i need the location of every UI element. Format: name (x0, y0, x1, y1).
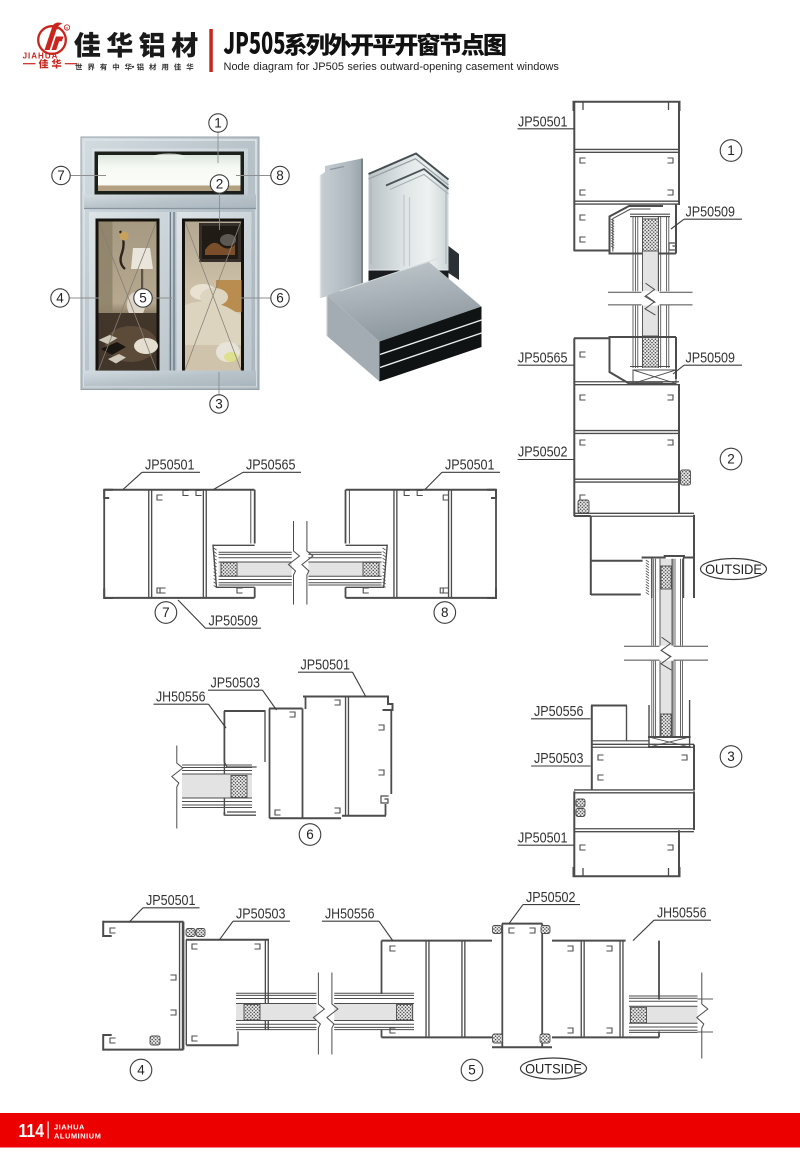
svg-text:7: 7 (162, 605, 170, 620)
svg-text:5: 5 (139, 291, 147, 306)
svg-text:3: 3 (727, 749, 735, 764)
svg-text:JH50556: JH50556 (325, 906, 375, 923)
svg-text:4: 4 (137, 1063, 145, 1078)
svg-text:OUTSIDE: OUTSIDE (525, 1061, 582, 1076)
svg-text:JP50556: JP50556 (534, 703, 584, 720)
svg-text:JH50556: JH50556 (156, 689, 206, 706)
svg-text:JP50503: JP50503 (534, 750, 584, 767)
svg-text:JP50501: JP50501 (518, 830, 568, 847)
svg-text:JP50509: JP50509 (209, 613, 259, 630)
svg-text:JH50556: JH50556 (657, 905, 707, 922)
svg-text:JP50502: JP50502 (518, 444, 568, 461)
svg-text:JP50501: JP50501 (518, 113, 568, 130)
svg-text:JP50501: JP50501 (145, 457, 195, 474)
svg-text:JP50503: JP50503 (236, 906, 286, 923)
svg-text:JP50501: JP50501 (445, 457, 495, 474)
svg-text:6: 6 (276, 291, 284, 306)
svg-text:1: 1 (727, 143, 735, 158)
svg-text:JP50509: JP50509 (686, 350, 736, 367)
svg-text:8: 8 (441, 605, 449, 620)
svg-text:3: 3 (215, 397, 223, 412)
svg-text:114: 114 (19, 1120, 45, 1141)
svg-text:2: 2 (216, 177, 224, 192)
svg-text:5: 5 (468, 1063, 476, 1078)
svg-text:8: 8 (276, 168, 284, 183)
svg-text:JIAHUA: JIAHUA (54, 1123, 85, 1132)
svg-text:OUTSIDE: OUTSIDE (705, 562, 762, 577)
svg-text:JP50565: JP50565 (518, 350, 568, 367)
svg-text:JP50503: JP50503 (211, 675, 261, 692)
svg-text:4: 4 (56, 291, 64, 306)
svg-text:6: 6 (306, 827, 314, 842)
svg-text:JP50565: JP50565 (246, 457, 296, 474)
svg-text:JP50502: JP50502 (526, 889, 576, 906)
svg-text:R: R (66, 25, 69, 30)
svg-text:Node diagram for JP505 series: Node diagram for JP505 series outward-op… (224, 61, 560, 73)
svg-text:2: 2 (727, 452, 735, 467)
svg-text:JP50509: JP50509 (686, 204, 736, 221)
svg-text:JP50501: JP50501 (146, 892, 196, 909)
svg-text:JP50501: JP50501 (301, 657, 351, 674)
svg-text:7: 7 (57, 168, 65, 183)
svg-text:JIAHUA: JIAHUA (23, 52, 59, 61)
svg-text:1: 1 (214, 116, 222, 131)
svg-text:ALUMINIUM: ALUMINIUM (54, 1132, 101, 1141)
